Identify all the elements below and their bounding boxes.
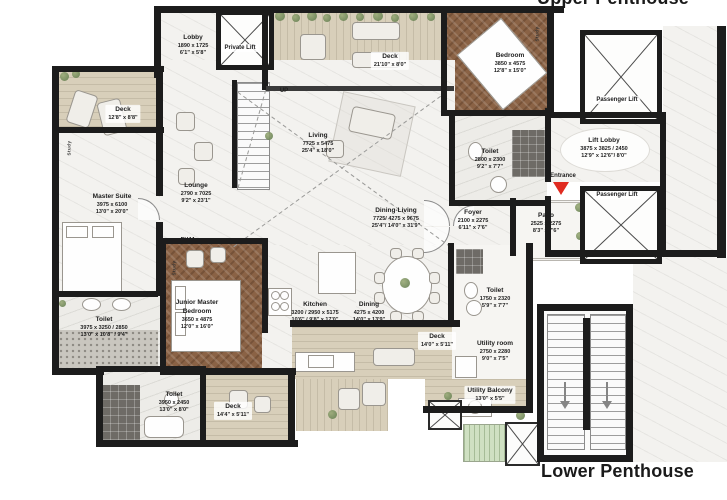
dining-chair [429, 292, 440, 304]
plant [60, 72, 69, 81]
wall [441, 6, 447, 116]
kitchen-sink [308, 355, 334, 368]
wall [510, 198, 516, 256]
wall [423, 406, 533, 413]
wall [288, 368, 295, 447]
wall [717, 26, 726, 258]
study-label: Study [535, 26, 540, 41]
room-label-toilet-junior: Toilet 3950 x 2450 13'0" x 8'0" [159, 391, 190, 415]
deck-round-chair [300, 34, 326, 60]
lift-cross-icon [585, 35, 657, 119]
service-unit [505, 422, 540, 466]
utility-toilet-shower [456, 249, 483, 274]
washbasin [82, 298, 101, 311]
dining-chair [412, 248, 424, 259]
lounge-chair [194, 142, 213, 161]
floor-plan: Lobby 1890 x 1725 6'1" x 5'8" Deck 12'8"… [0, 0, 727, 500]
plant [400, 278, 410, 288]
lift-cross-icon [585, 191, 657, 259]
wall [551, 112, 663, 118]
wall [545, 108, 551, 182]
passenger-lift-top-shaft [580, 30, 662, 124]
stairs-down-arrow [564, 382, 566, 406]
room-label-lift-lobby: Lift Lobby 3875 x 3825 / 2450 12'9" x 12… [580, 137, 627, 161]
study-label: Study [67, 140, 72, 155]
deck-sofa-round [338, 388, 360, 410]
room-label-deck-top: Deck 21'10" x 8'0" [371, 52, 409, 70]
wall [545, 250, 726, 257]
bedroom-toilet-shower [512, 130, 545, 177]
plant [328, 410, 337, 419]
utility-counter [455, 356, 477, 378]
wall [56, 291, 158, 297]
hob-burner [280, 302, 289, 311]
washbasin [112, 298, 131, 311]
stairs-down-arrow [606, 382, 608, 406]
wall [547, 6, 554, 114]
plant [265, 132, 273, 140]
wall [449, 110, 455, 206]
room-label-deck-bottom-right: Deck 14'0" x 5'11" [418, 332, 456, 350]
hob-burner [271, 291, 280, 300]
lower-stairs-flight-right [590, 314, 626, 450]
passenger-lift-top-label: Passenger Lift [593, 96, 640, 104]
plant [427, 13, 435, 21]
wall [160, 238, 268, 244]
junior-toilet-shower [102, 385, 140, 440]
passenger-lift-bottom-label: Passenger Lift [593, 191, 640, 199]
room-label-lobby: Lobby 1890 x 1725 6'1" x 5'8" [178, 34, 209, 58]
upper-penthouse-title: Upper Penthouse [537, 0, 689, 9]
wall [96, 368, 103, 447]
wall [156, 66, 163, 196]
wall [537, 304, 544, 462]
wall [441, 110, 554, 116]
wall [526, 243, 533, 413]
room-label-lounge: Lounge 2790 x 7025 9'2" x 23'1" [181, 182, 212, 206]
room-label-junior-master: Junior Master Bedroom 3650 x 4875 12'0" … [168, 299, 226, 331]
private-lift-label: Private Lift [221, 44, 258, 52]
plant [339, 12, 348, 21]
wall [160, 368, 296, 375]
room-label-deck-top-left: Deck 12'8" x 8'8" [105, 105, 140, 123]
plant [323, 14, 331, 22]
wall [52, 66, 164, 72]
room-label-living: Living 7725 x 5475 25'4" x 18'0" [302, 132, 334, 156]
room-label-kitchen: Kitchen 3200 / 2950 x 5175 10'6" / 9'8" … [291, 301, 338, 325]
service-unit [428, 400, 462, 430]
plant [292, 14, 300, 22]
hob-burner [280, 291, 289, 300]
hob-burner [271, 302, 280, 311]
junior-chair [186, 250, 204, 268]
wall [232, 80, 237, 188]
wall [537, 304, 633, 311]
lower-penthouse-title: Lower Penthouse [541, 461, 694, 482]
study-label: Study [172, 260, 177, 275]
dining-chair [390, 248, 402, 259]
junior-chair [210, 247, 226, 263]
kitchen-island [318, 252, 356, 294]
wall [448, 243, 454, 327]
wc [464, 282, 478, 299]
wall [154, 6, 564, 13]
entrance-label: Entrance [550, 173, 576, 179]
deck-chair [254, 396, 271, 413]
room-label-toilet-master: Toilet 3975 x 3250 / 2850 13'0" x 10'8" … [80, 316, 127, 340]
master-bed-pillow [92, 226, 114, 238]
master-bed-pillow [66, 226, 88, 238]
entrance-marker-icon [553, 182, 569, 195]
wall [583, 318, 590, 430]
room-label-foyer: Foyer 2100 x 2275 6'11" x 7'6" [458, 209, 489, 233]
core-bottom-right-floor [633, 258, 727, 462]
deck-bench [373, 348, 415, 366]
bathtub [144, 416, 184, 438]
room-label-dining: Dining 4275 x 4200 14'0" x 13'9" [353, 301, 385, 325]
window-wall [266, 86, 454, 91]
plant [391, 14, 399, 22]
wall [660, 112, 666, 252]
room-label-toilet-bedroom: Toilet 2800 x 2300 9'2" x 7'7" [475, 148, 506, 172]
dining-chair [374, 272, 385, 284]
deck-sofa [352, 22, 400, 40]
wall [52, 66, 59, 374]
room-label-bedroom: Bedroom 3850 x 4575 12'8" x 15'0" [491, 51, 529, 77]
wall [160, 243, 166, 373]
plant [409, 12, 418, 21]
lounge-chair [176, 112, 195, 131]
plant [59, 300, 66, 307]
wall [449, 200, 551, 206]
room-label-dining-living: Dining-Living 7725/ 4275 x 9675 25'4"/ 1… [372, 207, 420, 231]
wall [200, 368, 206, 443]
room-label-toilet-utility: Toilet 1750 x 2320 5'9" x 7'7" [480, 287, 511, 311]
room-label-deck-bottom-left: Deck 14'4" x 5'11" [214, 402, 252, 420]
lower-stairs-flight-left [547, 314, 585, 450]
cross-icon [507, 424, 538, 464]
deck-sofa-round [362, 382, 386, 406]
wall [626, 304, 633, 462]
plant [444, 392, 452, 400]
puja-label: PUJA [181, 237, 196, 243]
wall [52, 127, 164, 133]
room-label-utility-balcony: Utility Balcony 13'0" x 5'5" [464, 386, 515, 404]
room-label-master-suite: Master Suite 3975 x 6100 13'0" x 20'0" [93, 193, 132, 217]
room-label-patio: Patio 2525 x 2275 8'3" x 7'6" [531, 212, 562, 236]
washbasin [490, 176, 507, 193]
core-top-right-floor [663, 26, 717, 258]
wall [262, 8, 268, 90]
wall [96, 440, 298, 447]
wall [262, 241, 268, 333]
plant [356, 13, 364, 21]
dining-chair [429, 272, 440, 284]
room-label-utility-room: Utility room 2750 x 2280 9'0" x 7'5" [477, 340, 513, 364]
up-label: UP [280, 88, 288, 94]
